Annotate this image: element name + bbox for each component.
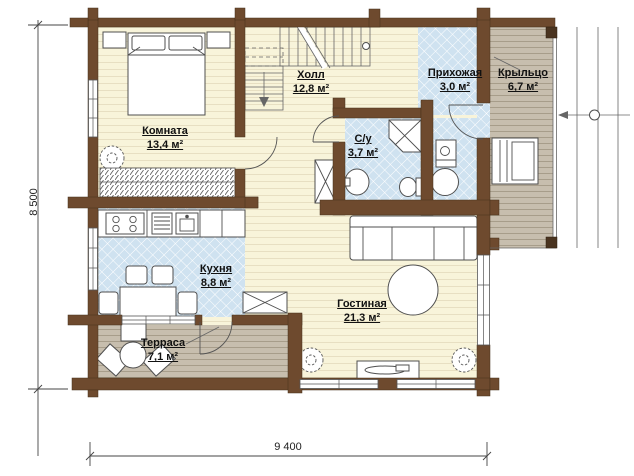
room-label-entry: Прихожая 3,0 м²: [428, 66, 482, 95]
bed-icon: [128, 33, 205, 115]
room-label-bathroom: С/у 3,7 м²: [348, 132, 378, 161]
deck-post: [546, 27, 557, 38]
room-name: Комната: [142, 124, 188, 138]
room-label-hall: Холл 12,8 м²: [293, 68, 329, 97]
dimension-width-label: 9 400: [274, 441, 302, 453]
bathroom-sink-icon: [345, 169, 369, 195]
room-name: Крыльцо: [498, 66, 548, 80]
room-area: 8,8 м²: [200, 276, 232, 290]
room-label-terrace: Терраса 7,1 м²: [141, 336, 185, 365]
room-name: Кухня: [200, 262, 232, 276]
room-area: 6,7 м²: [498, 80, 548, 94]
room-label-porch: Крыльцо 6,7 м²: [498, 66, 548, 95]
room-name: Терраса: [141, 336, 185, 350]
floor-plan: Комната 13,4 м² Холл 12,8 м² Прихожая 3,…: [0, 0, 634, 476]
storage-box-icon: [243, 292, 287, 313]
room-area: 3,0 м²: [428, 80, 482, 94]
entry-threshold: [477, 103, 490, 138]
kitchen-counter: [98, 210, 245, 237]
room-area: 3,7 м²: [348, 146, 378, 160]
room-area: 21,3 м²: [337, 311, 387, 325]
sofa-icon: [350, 216, 477, 260]
room-area: 13,4 м²: [142, 138, 188, 152]
nightstand-icon: [103, 32, 126, 48]
wc-sink-icon: [436, 140, 456, 167]
room-name: Гостиная: [337, 297, 387, 311]
room-label-kitchen: Кухня 8,8 м²: [200, 262, 232, 291]
vertical-dimension: [28, 20, 68, 456]
dimension-height-label: 8 500: [28, 188, 40, 216]
nightstand-icon: [207, 32, 230, 48]
room-area: 12,8 м²: [293, 82, 329, 96]
window-icon: [397, 380, 475, 389]
room-name: С/у: [348, 132, 378, 146]
room-name: Холл: [293, 68, 329, 82]
window-icon: [478, 255, 490, 345]
deck-post: [546, 237, 557, 248]
window-icon: [300, 380, 378, 389]
tv-stand-icon: [357, 361, 419, 379]
window-icon: [122, 316, 195, 324]
stove-icon: [106, 213, 144, 234]
room-area: 7,1 м²: [141, 350, 185, 364]
room-name: Прихожая: [428, 66, 482, 80]
room-label-living: Гостиная 21,3 м²: [337, 297, 387, 326]
window-icon: [89, 228, 98, 290]
plant-icon: [100, 146, 124, 170]
window-icon: [89, 80, 98, 137]
porch-bench-icon: [492, 138, 538, 184]
plant-icon: [452, 348, 476, 372]
wardrobe-icon: [100, 168, 235, 197]
entry-arrow-icon: [558, 110, 630, 120]
room-label-bedroom: Комната 13,4 м²: [142, 124, 188, 153]
round-table-icon: [388, 265, 438, 315]
plant-icon: [299, 348, 323, 372]
boiler-icon: [432, 169, 459, 196]
